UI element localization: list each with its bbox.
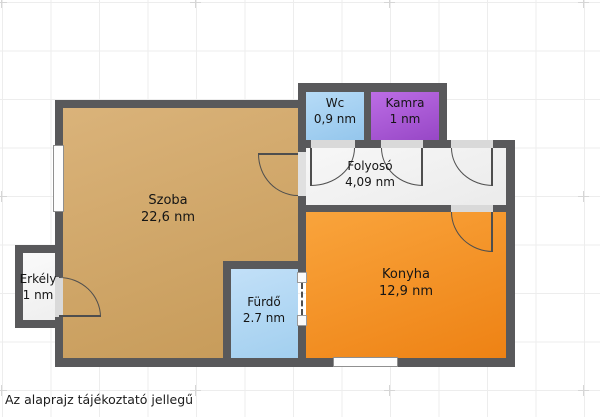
label-furdo: Fürdő 2.7 nm: [226, 294, 302, 327]
disclaimer-text: Az alaprajz tájékoztató jellegű: [5, 392, 405, 412]
wc-door-opening: [311, 140, 355, 148]
room-area: 12,9 nm: [379, 284, 433, 301]
grid-cross: [578, 385, 589, 396]
entry-door-opening: [451, 140, 493, 148]
window-szoba-left: [53, 145, 64, 212]
room-area: 0,9 nm: [314, 112, 356, 128]
room-name: Konyha: [382, 267, 430, 284]
entry-door-leaf: [491, 148, 493, 186]
label-szoba: Szoba 22,6 nm: [103, 194, 233, 226]
wall-left-upper: [55, 108, 63, 145]
grid-cross: [190, 0, 201, 8]
wall-bottom: [55, 358, 515, 367]
room-area: 1 nm: [390, 112, 421, 128]
wall-wc-kamra-top: [298, 83, 447, 92]
szoba-door-leaf: [258, 153, 298, 155]
wall-hall-konyha-seg: [298, 205, 451, 212]
wall-right: [506, 140, 515, 367]
wall-center-lower: [298, 326, 306, 358]
wall-hall-top-seg: [355, 140, 381, 148]
room-area: 2.7 nm: [243, 311, 285, 327]
erkely-door-leaf: [59, 315, 101, 317]
room-name: Erkély: [20, 272, 57, 288]
room-name: Folyosó: [347, 159, 392, 175]
konyha-door-leaf: [491, 212, 493, 252]
label-folyoso: Folyosó 4,09 nm: [318, 158, 422, 191]
wall-furdo-top: [223, 261, 306, 269]
room-area: 1 nm: [23, 288, 54, 304]
wall-wc-kamra-divider: [364, 92, 371, 140]
grid-cross: [0, 191, 7, 202]
furdo-jamb-top: [297, 272, 307, 283]
wc-door-leaf: [310, 148, 312, 186]
label-konyha: Konyha 12,9 nm: [341, 267, 471, 300]
wall-szoba-top: [55, 100, 306, 108]
wall-hall-top-seg: [298, 140, 311, 148]
kamra-door-opening: [381, 140, 423, 148]
room-name: Szoba: [148, 193, 187, 210]
label-wc: Wc 0,9 nm: [306, 96, 364, 128]
konyha-door-opening: [451, 205, 493, 212]
room-name: Fürdő: [247, 295, 281, 311]
grid-cross: [0, 0, 7, 8]
room-area: 22,6 nm: [141, 210, 195, 227]
wall-hall-top-seg: [423, 140, 451, 148]
grid-cross: [578, 191, 589, 202]
grid-cross: [578, 0, 589, 8]
wall-hall-konyha-seg: [493, 205, 515, 212]
wall-erkely-bottom: [15, 320, 63, 328]
label-erkely: Erkély 1 nm: [10, 271, 66, 304]
wall-kamra-right: [439, 83, 447, 148]
window-konyha-bottom: [333, 357, 398, 367]
label-kamra: Kamra 1 nm: [371, 96, 439, 128]
room-name: Kamra: [386, 96, 425, 112]
room-name: Wc: [326, 96, 344, 112]
grid-cross: [384, 0, 395, 8]
room-area: 4,09 nm: [345, 175, 395, 191]
floor-plan-canvas: Szoba 22,6 nm Wc 0,9 nm Kamra 1 nm Folyo…: [0, 0, 600, 417]
szoba-door-opening: [298, 152, 306, 196]
